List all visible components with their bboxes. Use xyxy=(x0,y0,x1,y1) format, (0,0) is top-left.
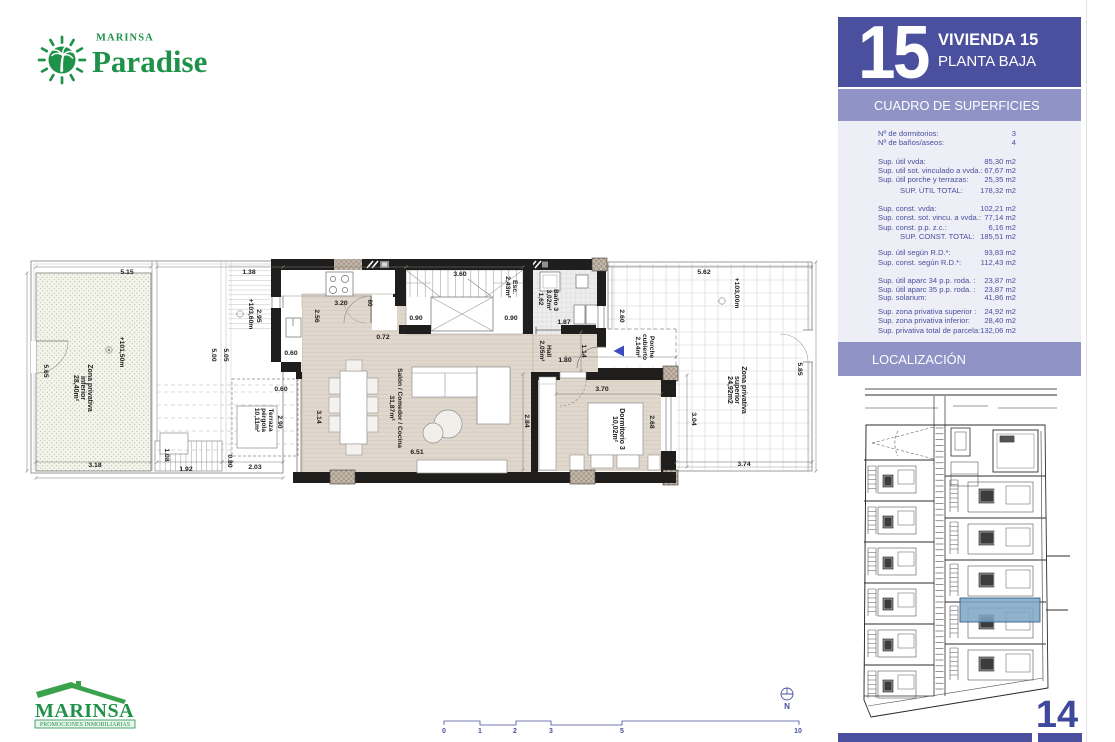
svg-text:Paradise: Paradise xyxy=(92,44,207,79)
svg-text:24,92m2: 24,92m2 xyxy=(726,376,733,404)
svg-text:Hall: Hall xyxy=(545,345,552,357)
svg-text:2: 2 xyxy=(513,728,517,735)
svg-text:2,14m²: 2,14m² xyxy=(634,337,641,359)
svg-text:2,05m²: 2,05m² xyxy=(538,341,545,363)
svg-text:MARINSA: MARINSA xyxy=(96,33,154,44)
svg-text:N: N xyxy=(784,702,790,711)
svg-text:Terraza: Terraza xyxy=(267,409,274,432)
svg-text:2.84: 2.84 xyxy=(523,414,530,427)
svg-text:Zona privativa: Zona privativa xyxy=(740,366,747,414)
svg-text:Baño 3: Baño 3 xyxy=(552,289,559,311)
svg-text:1.80: 1.80 xyxy=(558,357,571,364)
svg-text:2.60: 2.60 xyxy=(618,309,625,322)
svg-text:1.08: 1.08 xyxy=(163,448,170,461)
svg-text:×: × xyxy=(108,348,111,354)
svg-text:3,02m²: 3,02m² xyxy=(545,290,552,312)
svg-text:1: 1 xyxy=(478,728,482,735)
svg-text:2.56: 2.56 xyxy=(313,309,320,322)
svg-text:1.92: 1.92 xyxy=(179,466,192,473)
svg-text:0.60: 0.60 xyxy=(284,350,297,357)
svg-text:5.65: 5.65 xyxy=(42,364,49,377)
svg-text:3.70: 3.70 xyxy=(595,386,608,393)
svg-text:3.04: 3.04 xyxy=(690,412,697,425)
svg-text:pérgola: pérgola xyxy=(260,408,267,432)
svg-text:0.72: 0.72 xyxy=(376,334,389,341)
svg-text:2,43m²: 2,43m² xyxy=(504,276,511,298)
svg-text:+103,00m: +103,00m xyxy=(733,278,740,309)
svg-text:60: 60 xyxy=(366,300,373,307)
svg-text:inferior: inferior xyxy=(79,376,86,400)
svg-text:1.87: 1.87 xyxy=(557,319,570,326)
svg-text:3: 3 xyxy=(549,728,553,735)
svg-text:0: 0 xyxy=(442,728,446,735)
svg-text:3.14: 3.14 xyxy=(315,410,322,423)
svg-text:2.03: 2.03 xyxy=(248,464,261,471)
svg-text:3.60: 3.60 xyxy=(453,271,466,278)
svg-text:0.80: 0.80 xyxy=(226,454,233,467)
svg-text:10,02m²: 10,02m² xyxy=(611,416,618,443)
svg-text:10,11m²: 10,11m² xyxy=(253,408,260,433)
svg-text:3.20: 3.20 xyxy=(334,300,347,307)
svg-text:5.85: 5.85 xyxy=(796,362,803,375)
svg-text:31,87m²: 31,87m² xyxy=(388,395,395,421)
svg-text:1.14: 1.14 xyxy=(580,344,587,357)
svg-text:5.00: 5.00 xyxy=(210,348,217,361)
svg-text:1,62: 1,62 xyxy=(537,293,544,306)
svg-text:2.90: 2.90 xyxy=(276,415,283,428)
svg-text:+103,60m: +103,60m xyxy=(247,299,254,330)
svg-text:PROMOCIONES INMOBILIARIAS: PROMOCIONES INMOBILIARIAS xyxy=(40,722,130,728)
svg-text:0.60: 0.60 xyxy=(274,386,287,393)
svg-text:3.74: 3.74 xyxy=(737,461,750,468)
svg-text:0.90: 0.90 xyxy=(504,315,517,322)
svg-text:2.95: 2.95 xyxy=(255,309,262,322)
svg-text:6.51: 6.51 xyxy=(410,449,423,456)
svg-text:+101,50m: +101,50m xyxy=(118,337,125,368)
svg-text:Dormitorio 3: Dormitorio 3 xyxy=(618,408,625,450)
svg-text:5.05: 5.05 xyxy=(222,348,229,361)
svg-text:5: 5 xyxy=(620,728,624,735)
svg-text:Salón / Comedor / Cocina: Salón / Comedor / Cocina xyxy=(396,368,403,448)
svg-text:MARINSA: MARINSA xyxy=(35,700,134,722)
svg-text:Esc.: Esc. xyxy=(511,280,518,294)
svg-text:Zona privativa: Zona privativa xyxy=(86,364,93,412)
svg-text:5.62: 5.62 xyxy=(697,269,710,276)
svg-text:5.15: 5.15 xyxy=(120,269,133,276)
svg-text:0.90: 0.90 xyxy=(409,315,422,322)
svg-text:2.68: 2.68 xyxy=(648,415,655,428)
svg-text:cubierto: cubierto xyxy=(641,334,648,360)
svg-text:10: 10 xyxy=(794,728,802,735)
svg-text:28,40m²: 28,40m² xyxy=(72,375,79,402)
svg-text:3.18: 3.18 xyxy=(88,462,101,469)
svg-text:1.38: 1.38 xyxy=(242,269,255,276)
svg-text:Porche: Porche xyxy=(648,336,655,359)
svg-text:superior: superior xyxy=(733,376,740,404)
